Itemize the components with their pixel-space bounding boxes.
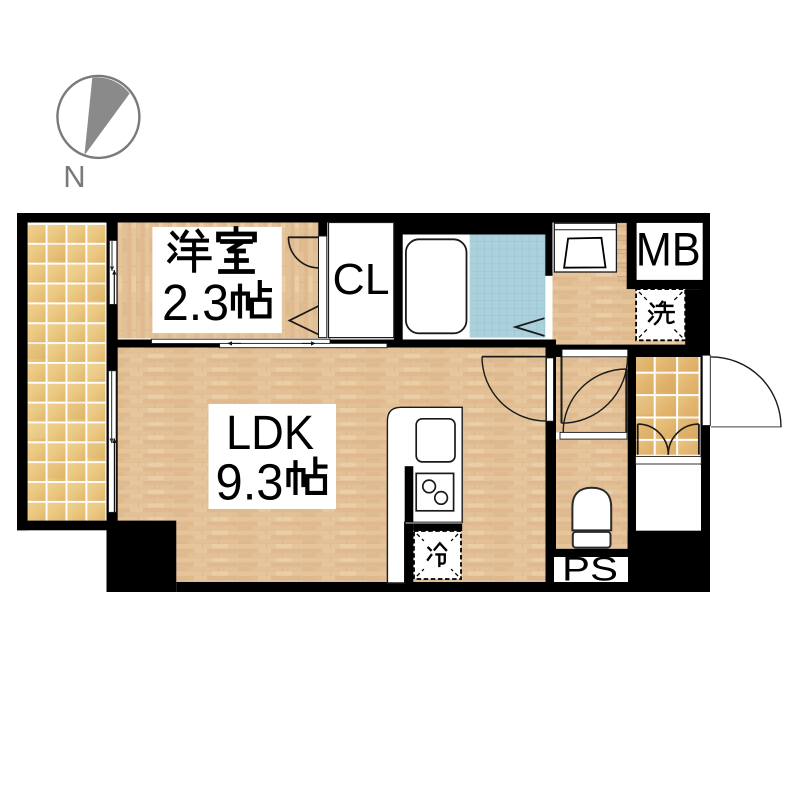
svg-text:MB: MB — [636, 222, 701, 275]
svg-text:PS: PS — [562, 551, 618, 589]
svg-text:N: N — [63, 159, 85, 194]
svg-text:9.3: 9.3 — [216, 454, 284, 511]
svg-text:CL: CL — [333, 255, 390, 304]
svg-text:LDK: LDK — [226, 407, 314, 460]
svg-text:2.3: 2.3 — [162, 274, 229, 331]
